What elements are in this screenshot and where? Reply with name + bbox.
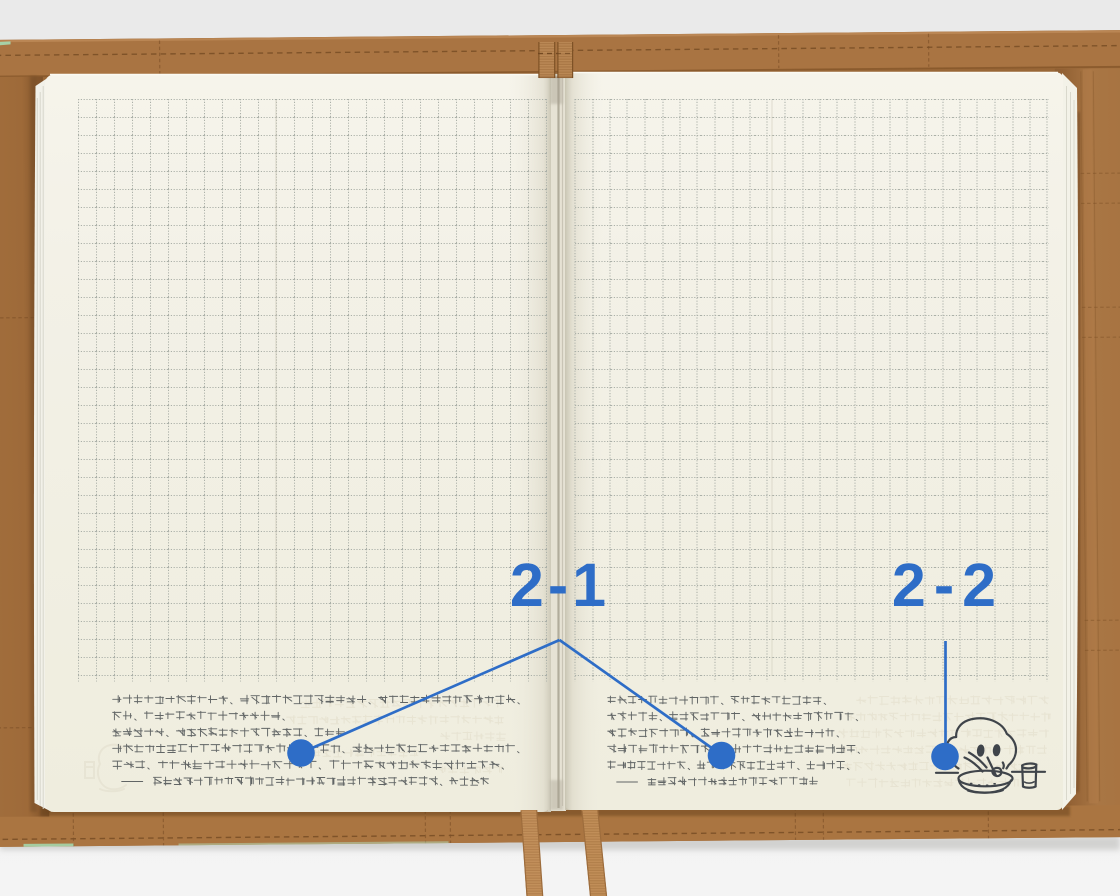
svg-text:2-2: 2-2: [892, 551, 1004, 619]
svg-text:2-1: 2-1: [510, 551, 610, 619]
